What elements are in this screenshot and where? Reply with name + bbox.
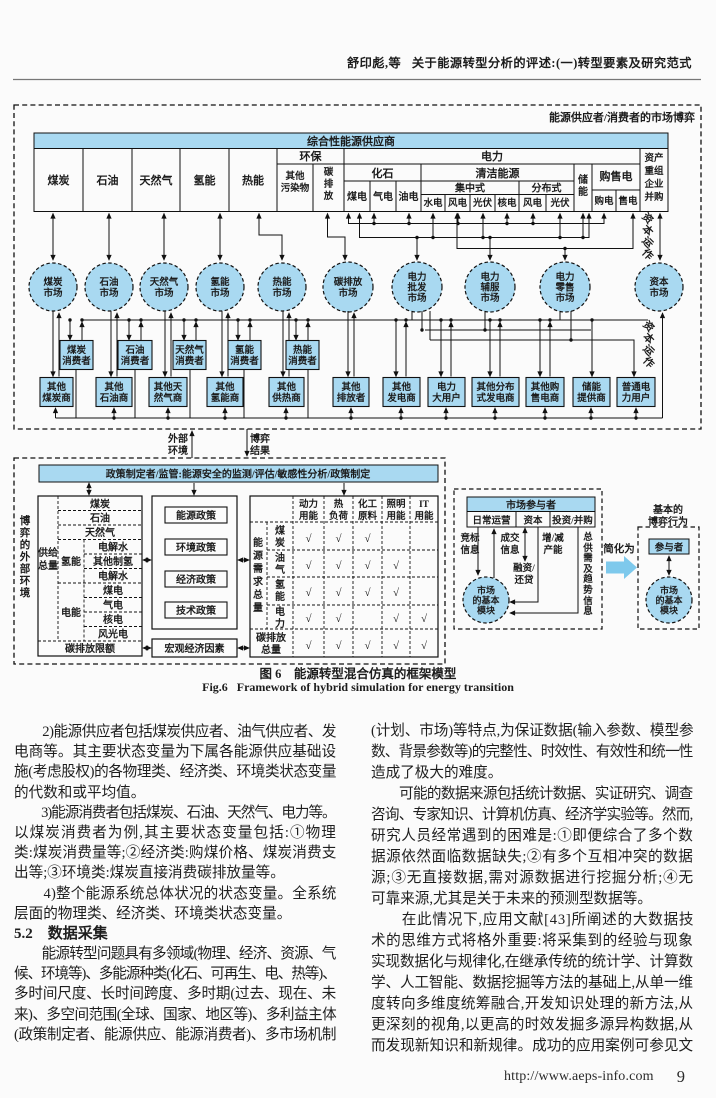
- svg-text:√: √: [335, 560, 342, 572]
- svg-text:天然气: 天然气: [140, 173, 173, 187]
- svg-text:用能: 用能: [413, 510, 434, 522]
- svg-text:其他天: 其他天: [154, 381, 183, 393]
- svg-text:污染物: 污染物: [281, 182, 310, 194]
- svg-text:能: 能: [578, 185, 588, 198]
- svg-text:排: 排: [324, 178, 334, 190]
- svg-text:宏观经济因素: 宏观经济因素: [165, 642, 225, 655]
- svg-text:能源政策: 能源政策: [176, 509, 217, 522]
- svg-text:消费者: 消费者: [121, 355, 150, 367]
- svg-text:购售电: 购售电: [600, 169, 633, 183]
- svg-text:√: √: [393, 613, 400, 625]
- svg-text:政策制定者/监管:能源安全的监测/评估/敏感性分析/政策制定: 政策制定者/监管:能源安全的监测/评估/敏感性分析/政策制定: [106, 468, 370, 481]
- svg-text:√: √: [421, 613, 428, 625]
- svg-text:零售: 零售: [554, 282, 574, 294]
- svg-text:化石: 化石: [372, 166, 394, 180]
- svg-text:动力: 动力: [299, 498, 318, 510]
- svg-text:电: 电: [275, 605, 285, 618]
- svg-text:供给: 供给: [37, 546, 58, 559]
- svg-text:油: 油: [275, 551, 285, 564]
- svg-text:环境: 环境: [168, 444, 188, 457]
- svg-text:博弈: 博弈: [250, 432, 270, 445]
- svg-text:核电: 核电: [497, 197, 517, 209]
- svg-text:然气商: 然气商: [154, 392, 183, 404]
- svg-text:气: 气: [274, 563, 285, 576]
- svg-text:煤电: 煤电: [347, 190, 367, 203]
- svg-text:碳排放限额: 碳排放限额: [65, 642, 115, 655]
- svg-text:增/减: 增/减: [542, 532, 564, 544]
- svg-text:化工: 化工: [358, 498, 378, 510]
- svg-text:辅服: 辅服: [480, 282, 500, 294]
- svg-text:参与者: 参与者: [654, 542, 684, 554]
- svg-text:模块: 模块: [477, 605, 496, 616]
- svg-text:市场: 市场: [338, 287, 358, 299]
- svg-text:√: √: [335, 587, 342, 599]
- svg-text:煤电: 煤电: [103, 584, 123, 597]
- svg-text:企业: 企业: [643, 178, 664, 190]
- svg-text:的: 的: [20, 538, 31, 551]
- svg-text:技术政策: 技术政策: [176, 604, 217, 617]
- svg-text:气电: 气电: [372, 190, 393, 203]
- svg-text:石油: 石油: [124, 344, 144, 356]
- svg-text:√: √: [364, 640, 371, 652]
- svg-text:气电: 气电: [102, 599, 123, 612]
- svg-text:消费者: 消费者: [175, 355, 204, 367]
- svg-text:电力: 电力: [480, 271, 499, 283]
- svg-text:弈: 弈: [20, 526, 31, 539]
- svg-text:天然气: 天然气: [175, 344, 204, 356]
- svg-text:市场: 市场: [210, 287, 230, 299]
- svg-text:重组: 重组: [644, 165, 664, 177]
- svg-text:力: 力: [275, 617, 285, 630]
- svg-text:氢能: 氢能: [61, 555, 81, 568]
- svg-text:总量: 总量: [261, 643, 281, 656]
- svg-text:还贷: 还贷: [513, 574, 534, 586]
- svg-text:√: √: [305, 587, 312, 599]
- svg-text:市场: 市场: [272, 287, 292, 299]
- svg-text:及: 及: [583, 564, 593, 575]
- svg-text:境: 境: [20, 586, 31, 599]
- svg-text:√: √: [364, 533, 371, 545]
- svg-text:信息: 信息: [500, 544, 520, 556]
- svg-text:式发电商: 式发电商: [476, 392, 515, 404]
- svg-text:并购: 并购: [644, 191, 664, 203]
- svg-text:油电: 油电: [399, 190, 419, 203]
- svg-text:总: 总: [583, 531, 593, 543]
- svg-text:放: 放: [323, 190, 334, 202]
- svg-text:√: √: [364, 560, 371, 572]
- svg-text:求: 求: [253, 575, 264, 588]
- svg-text:照明: 照明: [386, 499, 406, 510]
- svg-text:提供商: 提供商: [577, 392, 606, 404]
- svg-text:煤炭: 煤炭: [48, 173, 70, 187]
- svg-text:售电商: 售电商: [531, 392, 560, 404]
- svg-text:石油: 石油: [98, 276, 118, 288]
- svg-text:√: √: [393, 560, 400, 572]
- svg-text:博: 博: [20, 514, 31, 527]
- svg-text:√: √: [335, 613, 342, 625]
- svg-text:IT: IT: [419, 500, 430, 510]
- svg-text:批发: 批发: [407, 282, 427, 294]
- svg-text:综合性能源供应商: 综合性能源供应商: [307, 134, 395, 148]
- svg-text:电力: 电力: [437, 381, 456, 393]
- svg-text:碳: 碳: [324, 166, 334, 178]
- svg-text:投资/并购: 投资/并购: [552, 515, 593, 527]
- svg-text:舒印彪,等 关于能源转型分析的评述:(一)转型要素及研究: 舒印彪,等 关于能源转型分析的评述:(一)转型要素及研究范式: [346, 55, 692, 70]
- svg-text:煤炭商: 煤炭商: [42, 392, 71, 404]
- svg-text:能: 能: [275, 590, 285, 603]
- svg-text:消费者: 消费者: [288, 355, 317, 367]
- svg-text:其他: 其他: [277, 381, 297, 393]
- svg-text:作: 作: [640, 354, 657, 371]
- svg-text:能: 能: [253, 536, 263, 549]
- svg-text:力用户: 力用户: [622, 392, 651, 404]
- svg-text:√: √: [305, 533, 312, 545]
- svg-text:风电: 风电: [523, 197, 543, 209]
- svg-text:息: 息: [583, 605, 593, 617]
- svg-text:产能: 产能: [543, 544, 563, 556]
- svg-text:√: √: [393, 640, 400, 652]
- svg-text:煤炭: 煤炭: [90, 498, 110, 511]
- svg-text:石油: 石油: [89, 512, 110, 525]
- svg-text:趋: 趋: [582, 573, 593, 585]
- svg-text:总: 总: [253, 588, 263, 601]
- svg-text:售电: 售电: [618, 195, 638, 207]
- svg-text:储能: 储能: [582, 381, 602, 393]
- svg-text:电力: 电力: [407, 271, 426, 283]
- svg-text:热: 热: [334, 498, 344, 510]
- svg-text:信息: 信息: [460, 544, 480, 556]
- svg-text:天然气: 天然气: [150, 276, 179, 288]
- svg-text:氢能: 氢能: [210, 276, 230, 288]
- svg-text:市场参与者: 市场参与者: [506, 499, 556, 512]
- svg-text:资本: 资本: [649, 276, 669, 288]
- svg-text:其他制氢: 其他制氢: [93, 555, 133, 568]
- svg-text:的基本: 的基本: [655, 595, 683, 606]
- svg-text:市场: 市场: [480, 292, 500, 304]
- svg-text:供: 供: [582, 542, 593, 554]
- svg-text:其他: 其他: [215, 381, 235, 393]
- svg-text:资本: 资本: [523, 515, 543, 527]
- svg-text:光伏: 光伏: [472, 197, 493, 209]
- svg-text:其他: 其他: [104, 381, 124, 393]
- svg-text:其他分布: 其他分布: [476, 381, 515, 393]
- svg-text:氢能商: 氢能商: [211, 392, 240, 404]
- svg-text:发电商: 发电商: [386, 392, 416, 404]
- svg-text:量: 量: [253, 601, 263, 614]
- svg-text:市场: 市场: [43, 287, 63, 299]
- svg-text:总量: 总量: [38, 559, 58, 572]
- svg-text:储: 储: [577, 173, 588, 186]
- svg-text:碳排放: 碳排放: [256, 631, 287, 644]
- svg-text:环: 环: [20, 575, 31, 587]
- svg-text:消费者: 消费者: [62, 355, 91, 367]
- svg-text:原料: 原料: [358, 510, 378, 522]
- svg-text:氢能: 氢能: [194, 173, 216, 187]
- svg-text:融资/: 融资/: [513, 562, 535, 574]
- svg-text:消费者: 消费者: [230, 355, 259, 367]
- svg-text:煤炭: 煤炭: [67, 344, 87, 356]
- svg-text:结果: 结果: [250, 444, 271, 457]
- svg-text:环境政策: 环境政策: [176, 541, 217, 554]
- svg-text:其他: 其他: [285, 170, 305, 182]
- svg-text:势: 势: [583, 584, 593, 596]
- svg-text:氢: 氢: [275, 578, 285, 591]
- svg-text:电力: 电力: [555, 271, 574, 283]
- svg-text:基本的: 基本的: [652, 503, 683, 516]
- svg-text:购电: 购电: [594, 195, 614, 207]
- svg-text:√: √: [364, 587, 371, 599]
- svg-text:市场: 市场: [407, 292, 427, 304]
- svg-text:热能: 热能: [293, 344, 313, 356]
- svg-text:市场: 市场: [477, 585, 495, 596]
- svg-text:环保: 环保: [300, 149, 323, 163]
- svg-text:模块: 模块: [660, 605, 679, 616]
- svg-text:电解水: 电解水: [98, 570, 129, 583]
- svg-text:其他: 其他: [341, 381, 361, 393]
- svg-text:信: 信: [583, 595, 593, 607]
- svg-text:清洁能源: 清洁能源: [476, 166, 520, 180]
- svg-text:成交: 成交: [500, 532, 520, 544]
- svg-text:大用户: 大用户: [432, 392, 461, 404]
- svg-text:炭: 炭: [275, 536, 285, 549]
- svg-text:√: √: [335, 640, 342, 652]
- svg-text:负荷: 负荷: [329, 510, 349, 522]
- svg-text:日常运营: 日常运营: [472, 515, 511, 527]
- svg-text:石油: 石油: [96, 173, 119, 187]
- svg-text:电力: 电力: [481, 149, 503, 163]
- svg-text:市场: 市场: [154, 287, 174, 299]
- svg-text:源: 源: [253, 549, 263, 562]
- svg-text:光伏: 光伏: [549, 197, 570, 209]
- svg-text:氢能: 氢能: [235, 344, 255, 356]
- svg-text:热能: 热能: [242, 173, 264, 187]
- svg-text:博弈行为: 博弈行为: [648, 515, 688, 528]
- svg-text:部: 部: [20, 562, 31, 575]
- svg-text:供热商: 供热商: [271, 392, 301, 404]
- svg-text:分布式: 分布式: [532, 182, 562, 195]
- svg-text:市场: 市场: [555, 292, 575, 304]
- svg-text:碳排放: 碳排放: [334, 276, 363, 288]
- svg-text:作: 作: [639, 246, 656, 263]
- svg-text:竞标: 竞标: [459, 532, 480, 544]
- svg-text:√: √: [305, 613, 312, 625]
- svg-text:普通电: 普通电: [622, 381, 651, 393]
- svg-text:外: 外: [19, 550, 31, 563]
- svg-text:热能: 热能: [272, 276, 292, 288]
- svg-text:√: √: [305, 560, 312, 572]
- svg-text:√: √: [393, 587, 400, 599]
- svg-text:风光电: 风光电: [98, 628, 128, 641]
- svg-text:其他购: 其他购: [531, 381, 560, 393]
- svg-text:经济政策: 经济政策: [176, 573, 217, 586]
- svg-text:简化为: 简化为: [603, 542, 635, 555]
- svg-text:电能: 电能: [61, 606, 81, 619]
- svg-text:电解水: 电解水: [98, 541, 129, 554]
- svg-text:其他: 其他: [392, 381, 412, 393]
- svg-text:排放者: 排放者: [337, 392, 366, 404]
- svg-text:需: 需: [583, 552, 593, 564]
- svg-text:外部: 外部: [167, 432, 188, 445]
- svg-text:√: √: [421, 640, 428, 652]
- svg-text:市场: 市场: [660, 585, 678, 596]
- svg-text:市场: 市场: [99, 287, 119, 299]
- svg-text:集中式: 集中式: [454, 182, 485, 195]
- svg-text:煤炭: 煤炭: [43, 276, 63, 288]
- svg-text:市场: 市场: [649, 287, 669, 299]
- svg-text:需: 需: [253, 563, 263, 575]
- svg-text:的基本: 的基本: [472, 595, 500, 606]
- svg-text:用能: 用能: [385, 510, 406, 522]
- svg-text:其他: 其他: [47, 381, 67, 393]
- svg-text:天然气: 天然气: [85, 526, 115, 539]
- svg-text:风电: 风电: [448, 197, 468, 209]
- svg-text:能源供应者/消费者的市场博弈: 能源供应者/消费者的市场博弈: [549, 110, 695, 124]
- svg-text:水电: 水电: [423, 197, 443, 209]
- svg-text:煤: 煤: [275, 524, 285, 537]
- svg-text:√: √: [305, 640, 312, 652]
- svg-text:用能: 用能: [298, 510, 319, 522]
- svg-text:√: √: [335, 533, 342, 545]
- svg-text:石油商: 石油商: [99, 392, 129, 404]
- svg-text:资产: 资产: [644, 152, 664, 164]
- svg-text:核电: 核电: [103, 613, 123, 626]
